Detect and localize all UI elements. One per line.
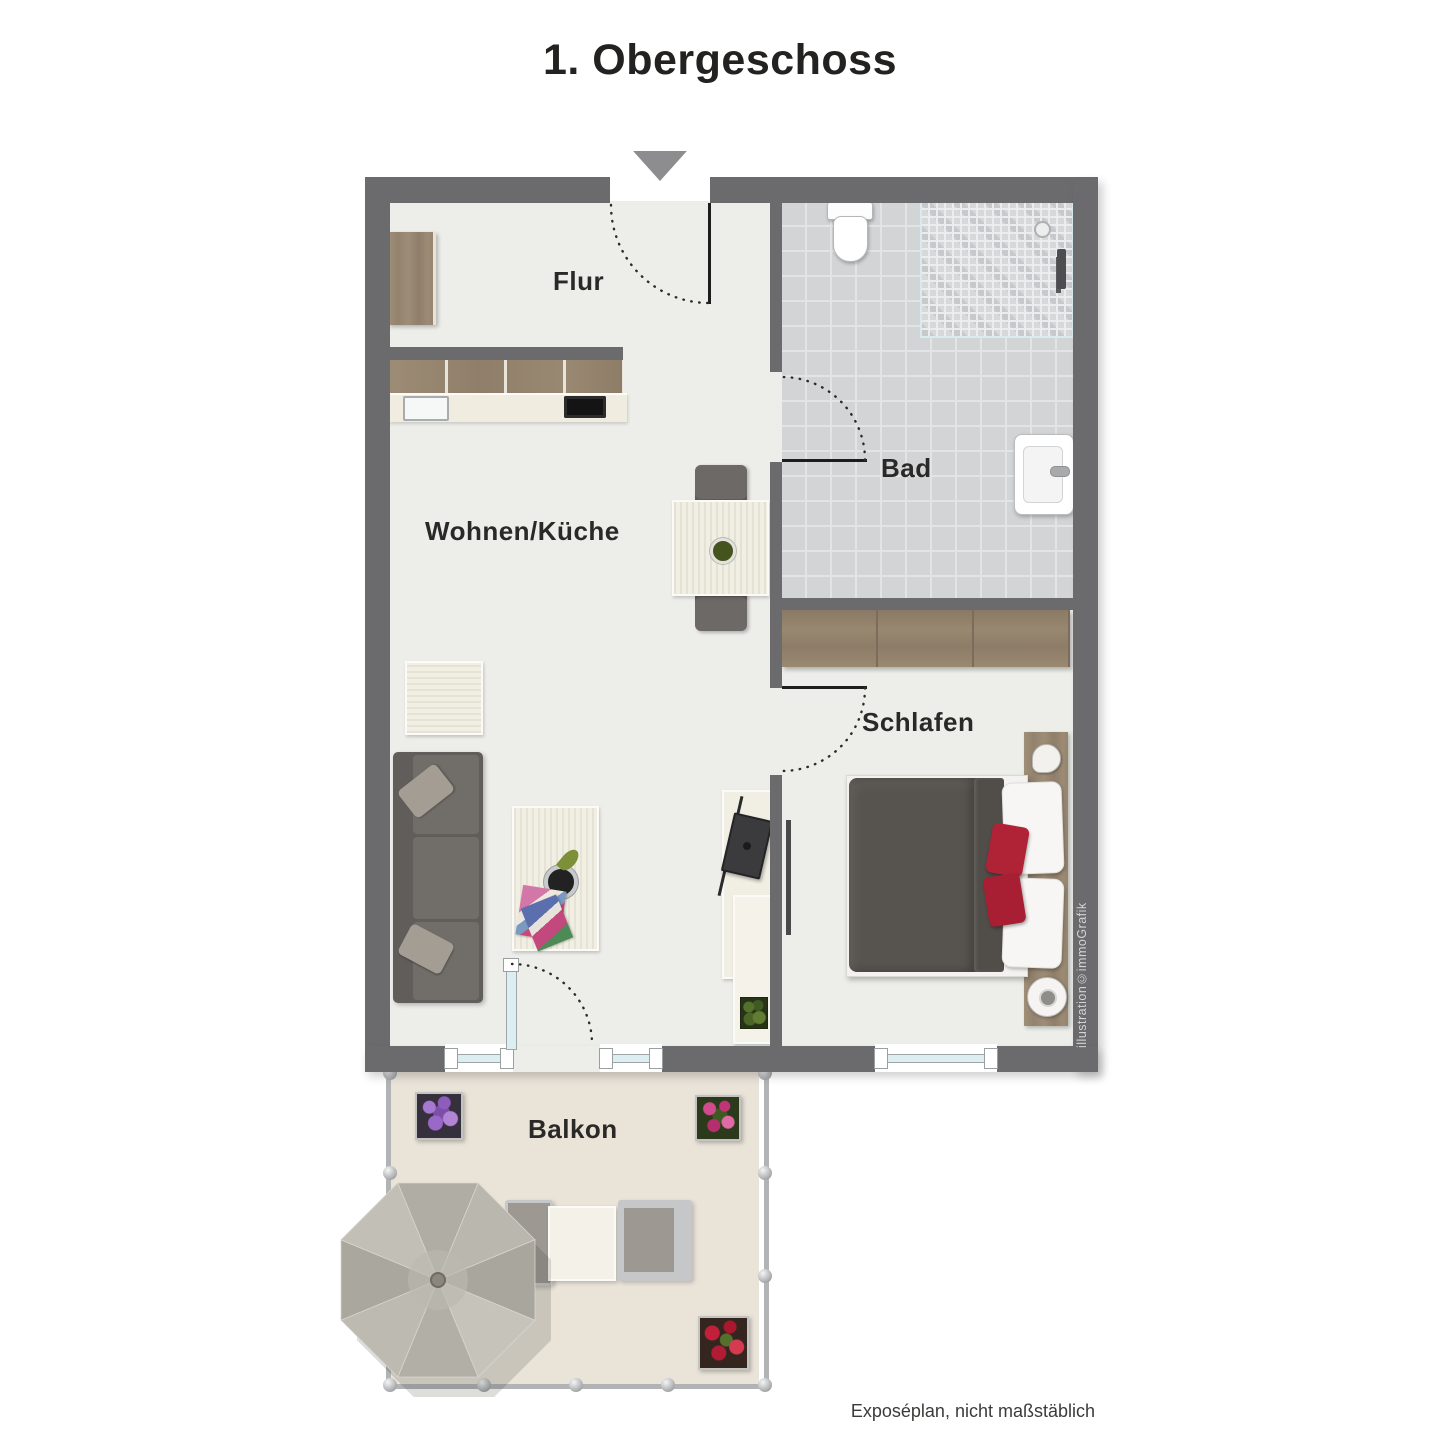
umbrella-pole — [431, 1273, 445, 1287]
room-label-flur: Flur — [553, 266, 604, 297]
door-swing-arcs — [0, 0, 1440, 1440]
chair-seat — [624, 1208, 674, 1272]
bedroom-door-swing — [782, 688, 865, 771]
entrance-door-swing — [611, 205, 709, 303]
flower-pot-purple — [415, 1092, 463, 1140]
room-label-balkon: Balkon — [528, 1114, 618, 1145]
footer-note: Exposéplan, nicht maßstäblich — [851, 1401, 1095, 1422]
balcony-door-swing — [512, 964, 592, 1044]
bathroom-door-swing — [782, 377, 865, 460]
flower-pot-pink — [695, 1095, 741, 1141]
room-label-schlafen: Schlafen — [862, 707, 974, 738]
patio-umbrella — [308, 1150, 568, 1410]
room-label-bad: Bad — [881, 453, 932, 484]
room-label-wohnen-kueche: Wohnen/Küche — [425, 516, 620, 547]
balcony-chair-right — [618, 1200, 692, 1281]
flower-pot-red — [698, 1316, 749, 1370]
illustrator-credit: illustration©immoGrafik — [1075, 898, 1089, 1048]
floorplan-canvas: 1. Obergeschoss — [0, 0, 1440, 1440]
